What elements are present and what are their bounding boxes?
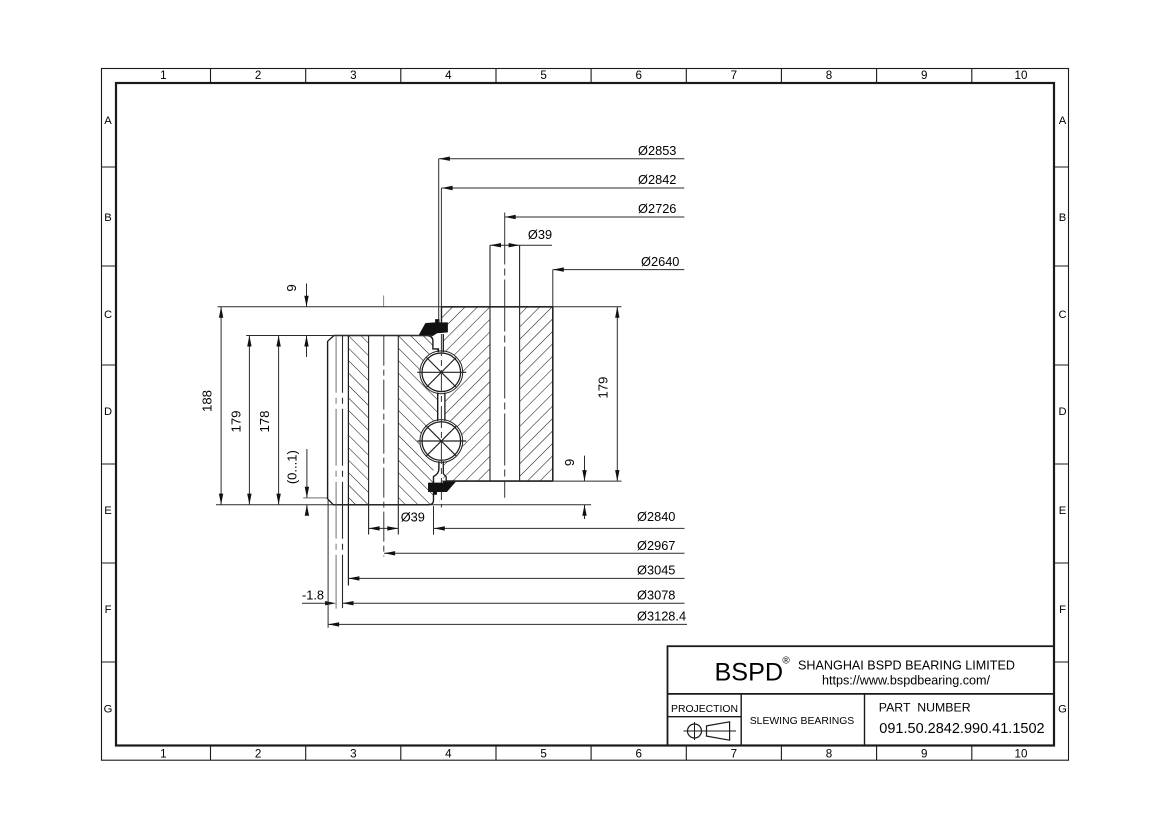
svg-text:179: 179: [596, 377, 611, 399]
svg-text:®: ®: [782, 656, 790, 667]
svg-text:4: 4: [445, 69, 452, 82]
svg-text:Ø2726: Ø2726: [638, 201, 676, 216]
svg-text:Ø3045: Ø3045: [637, 563, 675, 578]
svg-text:(0...1): (0...1): [285, 450, 300, 484]
svg-text:-1.8: -1.8: [302, 588, 324, 603]
svg-text:SHANGHAI BSPD BEARING LIMITED: SHANGHAI BSPD BEARING LIMITED: [798, 659, 1015, 673]
svg-text:4: 4: [445, 747, 452, 760]
svg-text:F: F: [105, 604, 112, 616]
svg-text:6: 6: [635, 747, 641, 760]
svg-text:B: B: [104, 212, 111, 224]
svg-text:9: 9: [921, 69, 927, 82]
svg-text:3: 3: [350, 747, 356, 760]
svg-text:1: 1: [160, 69, 166, 82]
svg-text:E: E: [104, 505, 111, 517]
svg-text:D: D: [1058, 406, 1066, 418]
svg-text:7: 7: [731, 747, 737, 760]
svg-text:F: F: [1059, 604, 1066, 616]
svg-text:5: 5: [540, 747, 546, 760]
svg-text:6: 6: [635, 69, 641, 82]
svg-text:5: 5: [540, 69, 546, 82]
svg-text:Ø2967: Ø2967: [637, 538, 675, 553]
svg-text:2: 2: [255, 69, 261, 82]
svg-text:Ø2840: Ø2840: [637, 509, 675, 524]
svg-text:Ø39: Ø39: [528, 227, 552, 242]
svg-text:091.50.2842.990.41.1502: 091.50.2842.990.41.1502: [879, 721, 1044, 737]
svg-text:10: 10: [1015, 747, 1028, 760]
svg-text:Ø2842: Ø2842: [638, 172, 676, 187]
svg-text:9: 9: [284, 284, 299, 291]
svg-text:8: 8: [826, 69, 832, 82]
svg-text:9: 9: [562, 459, 577, 466]
svg-text:2: 2: [255, 747, 261, 760]
svg-text:BSPD: BSPD: [715, 658, 784, 686]
svg-text:C: C: [1058, 309, 1066, 321]
svg-text:G: G: [1058, 703, 1067, 715]
svg-text:9: 9: [921, 747, 927, 760]
svg-text:Ø2640: Ø2640: [641, 254, 679, 269]
svg-text:8: 8: [826, 747, 832, 760]
svg-text:1: 1: [160, 747, 166, 760]
svg-text:188: 188: [199, 390, 214, 412]
svg-text:PART NUMBER: PART NUMBER: [879, 701, 971, 715]
svg-text:B: B: [1059, 212, 1066, 224]
svg-text:10: 10: [1015, 69, 1028, 82]
svg-text:G: G: [104, 703, 113, 715]
svg-text:7: 7: [731, 69, 737, 82]
svg-text:Ø2853: Ø2853: [638, 143, 676, 158]
svg-text:PROJECTION: PROJECTION: [671, 704, 738, 715]
svg-text:https://www.bspdbearing.com/: https://www.bspdbearing.com/: [822, 674, 990, 688]
svg-text:D: D: [104, 406, 112, 418]
svg-text:Ø3078: Ø3078: [637, 588, 675, 603]
svg-text:178: 178: [257, 410, 272, 432]
svg-text:179: 179: [228, 410, 243, 432]
svg-text:C: C: [104, 309, 112, 321]
svg-text:A: A: [104, 115, 112, 127]
svg-text:3: 3: [350, 69, 356, 82]
svg-text:A: A: [1059, 115, 1067, 127]
svg-text:SLEWING BEARINGS: SLEWING BEARINGS: [750, 716, 855, 727]
svg-text:Ø3128.4: Ø3128.4: [637, 609, 686, 624]
svg-text:Ø39: Ø39: [401, 510, 425, 525]
svg-text:E: E: [1059, 505, 1066, 517]
